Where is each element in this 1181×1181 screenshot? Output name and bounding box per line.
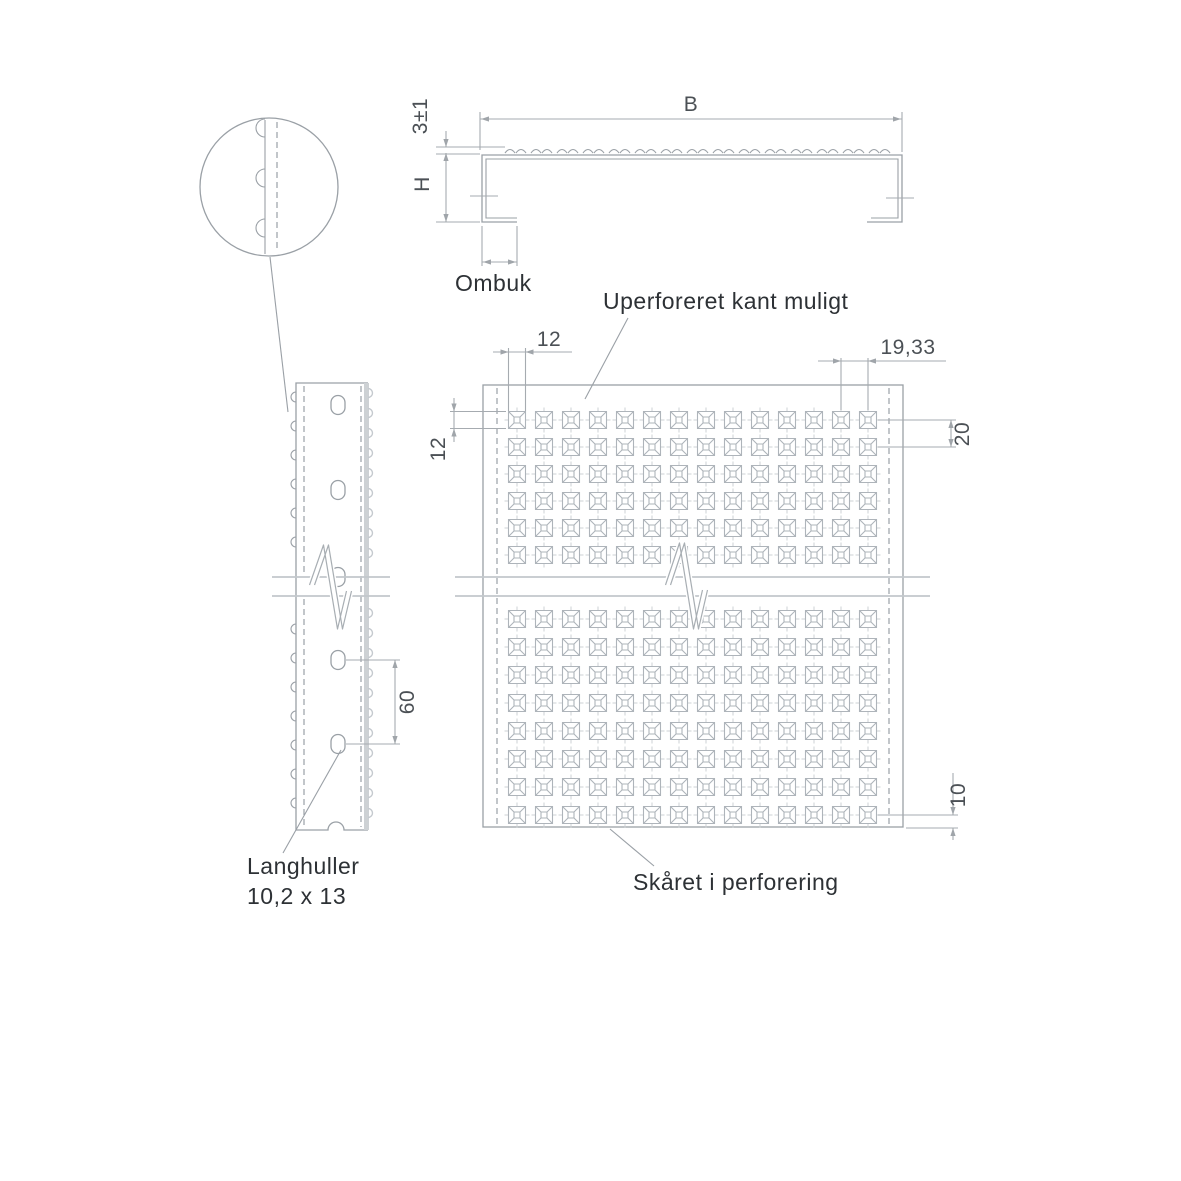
dim-slot-spacing: 60 bbox=[396, 690, 419, 714]
detail-serration-bumps bbox=[256, 119, 265, 237]
dim-row-pitch: 20 bbox=[951, 422, 974, 446]
dim-perf-width: 12 bbox=[537, 328, 561, 351]
panel-view: 12 12 19,33 20 10 Uperforeret kant mulig… bbox=[427, 288, 974, 895]
label-unperforated-edge: Uperforeret kant muligt bbox=[603, 288, 849, 314]
cross-section-view: B 3±1 H Ombuk bbox=[409, 93, 914, 296]
profile-drawing: B 3±1 H Ombuk 60 Langhuller 10,2 x 13 bbox=[0, 0, 1181, 1181]
dim-rib-height: 3±1 bbox=[409, 98, 432, 134]
profile-inner-contour bbox=[486, 159, 898, 218]
detail-circle-view bbox=[200, 118, 338, 412]
detail-leader-line bbox=[270, 257, 288, 412]
technical-drawing-page: B 3±1 H Ombuk 60 Langhuller 10,2 x 13 bbox=[0, 0, 1181, 1181]
strip-view: 60 Langhuller 10,2 x 13 bbox=[247, 383, 419, 909]
dim-bottom-edge: 10 bbox=[947, 783, 970, 807]
unperforated-edge-leader bbox=[585, 318, 628, 399]
dim-profile-width: B bbox=[684, 93, 699, 116]
cross-section-arrows bbox=[443, 116, 901, 264]
cut-in-perforation-leader bbox=[610, 829, 654, 866]
dim-perf-pitch: 19,33 bbox=[880, 336, 935, 359]
label-slotted-holes-1: Langhuller bbox=[247, 853, 359, 879]
strip-serration-bumps bbox=[291, 392, 296, 808]
cross-section-dim-lines bbox=[436, 112, 902, 266]
label-cut-in-perforation: Skåret i perforering bbox=[633, 869, 839, 895]
label-ombuk: Ombuk bbox=[455, 270, 532, 296]
detail-circle bbox=[200, 118, 338, 256]
label-slotted-holes-2: 10,2 x 13 bbox=[247, 883, 346, 909]
dim-perf-height: 12 bbox=[427, 437, 450, 461]
dim-profile-height: H bbox=[411, 176, 434, 192]
profile-outer-contour bbox=[482, 155, 902, 222]
rib-waves bbox=[505, 150, 890, 154]
